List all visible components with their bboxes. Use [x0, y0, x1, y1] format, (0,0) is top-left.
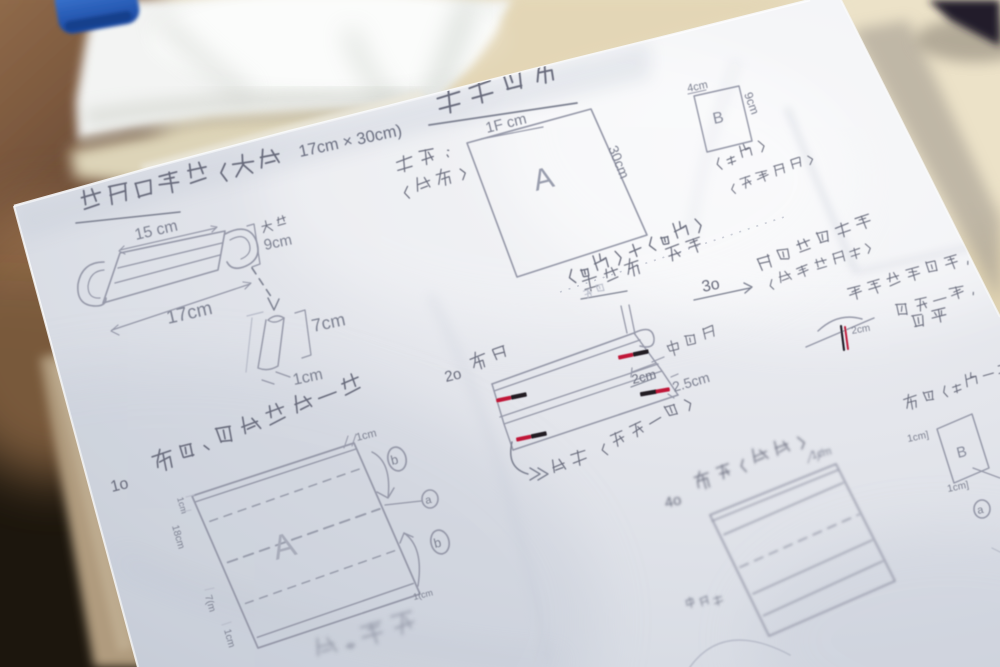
svg-text:3o: 3o [700, 276, 721, 296]
